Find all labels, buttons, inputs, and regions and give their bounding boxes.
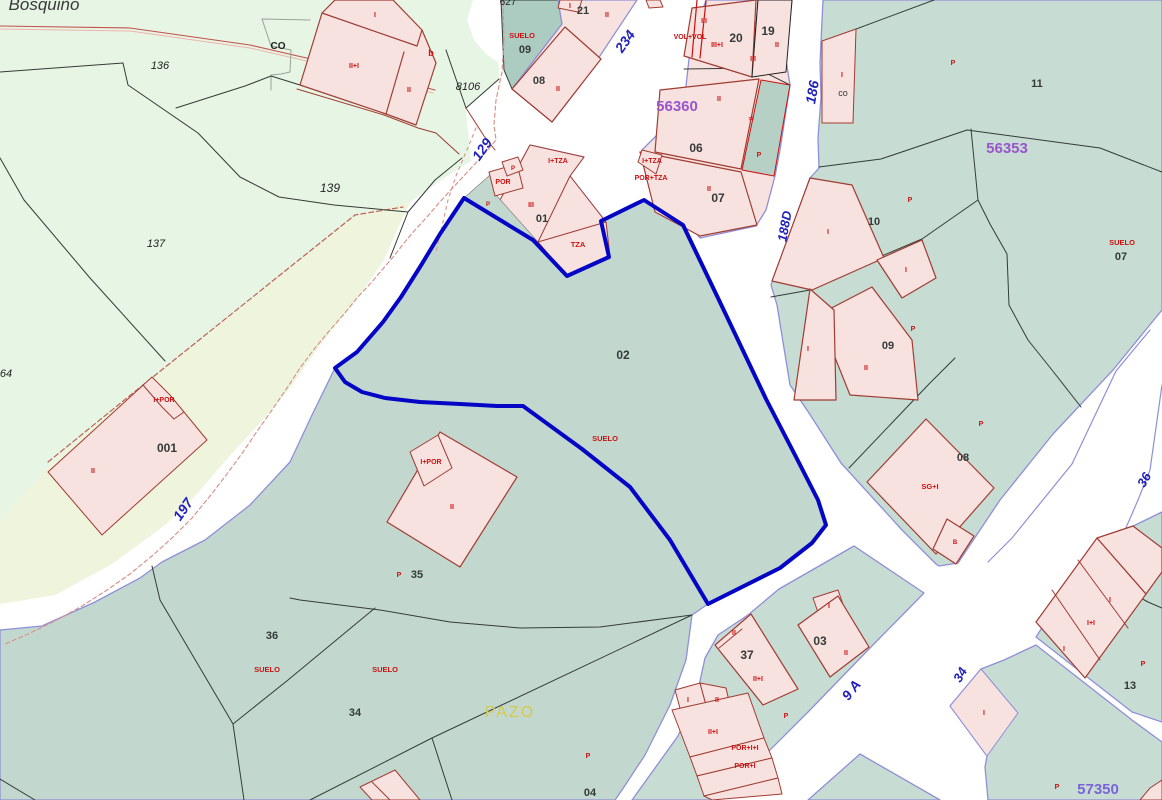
svg-text:627: 627 (500, 0, 517, 8)
svg-text:SUELO: SUELO (372, 665, 398, 674)
svg-text:01: 01 (536, 213, 548, 225)
svg-text:II: II (844, 650, 848, 657)
svg-text:II+I: II+I (708, 729, 718, 736)
svg-text:II: II (864, 365, 868, 372)
svg-text:P: P (486, 202, 490, 208)
svg-text:001: 001 (157, 441, 177, 455)
svg-text:I+POR: I+POR (420, 459, 441, 466)
svg-text:CO: CO (271, 41, 286, 52)
svg-text:B: B (953, 540, 958, 546)
svg-text:P: P (397, 572, 402, 579)
svg-text:II: II (732, 630, 736, 637)
svg-text:P: P (511, 166, 515, 172)
svg-text:I: I (1109, 597, 1111, 604)
svg-text:09: 09 (882, 340, 894, 352)
svg-text:I+TZA: I+TZA (548, 158, 568, 165)
svg-text:I+POR: I+POR (153, 397, 174, 404)
svg-text:SUELO: SUELO (1109, 238, 1135, 247)
svg-text:I+TZA: I+TZA (642, 158, 662, 165)
svg-text:II: II (556, 86, 560, 93)
svg-text:I: I (841, 72, 843, 79)
svg-text:57350: 57350 (1077, 781, 1119, 798)
svg-text:III: III (750, 56, 756, 63)
svg-text:21: 21 (577, 5, 589, 17)
svg-text:20: 20 (729, 31, 743, 45)
svg-text:I: I (905, 267, 907, 274)
svg-text:136: 136 (151, 60, 170, 72)
svg-text:I: I (374, 12, 376, 19)
svg-text:II+I: II+I (753, 676, 763, 683)
svg-text:36: 36 (266, 630, 278, 642)
svg-text:POR+I+I: POR+I+I (731, 745, 758, 752)
svg-text:I: I (1063, 646, 1065, 653)
svg-text:SUELO: SUELO (254, 665, 280, 674)
svg-text:37: 37 (740, 648, 754, 662)
svg-text:P: P (951, 60, 956, 67)
svg-text:POR: POR (495, 179, 510, 186)
svg-text:P: P (1055, 784, 1060, 791)
svg-text:III: III (528, 202, 534, 209)
svg-text:139: 139 (320, 181, 340, 195)
svg-text:II: II (717, 96, 721, 103)
svg-text:137: 137 (147, 238, 166, 250)
svg-text:P: P (757, 152, 762, 159)
svg-text:III+I: III+I (711, 42, 723, 49)
svg-text:13: 13 (1124, 680, 1136, 692)
svg-text:II: II (450, 504, 454, 511)
svg-text:TZA: TZA (571, 240, 586, 249)
svg-text:I: I (687, 697, 689, 704)
svg-text:19: 19 (761, 24, 775, 38)
svg-text:P: P (979, 421, 984, 428)
svg-text:II: II (605, 12, 609, 19)
svg-text:I+I: I+I (1087, 620, 1095, 627)
svg-text:Bosquiño: Bosquiño (9, 0, 80, 14)
svg-text:SUELO: SUELO (592, 434, 618, 443)
svg-text:34: 34 (349, 707, 362, 719)
svg-text:P: P (1141, 661, 1146, 668)
svg-text:II: II (715, 697, 719, 704)
svg-text:08: 08 (957, 452, 969, 464)
svg-text:II: II (775, 42, 779, 49)
svg-text:I: I (807, 346, 809, 353)
svg-text:I: I (828, 603, 830, 610)
svg-text:PAZO: PAZO (485, 704, 535, 721)
svg-text:04: 04 (584, 787, 597, 799)
svg-text:II: II (407, 87, 411, 94)
svg-text:POR+I: POR+I (734, 763, 755, 770)
svg-text:P: P (784, 713, 789, 720)
svg-text:b: b (428, 48, 434, 58)
svg-text:56353: 56353 (986, 140, 1028, 157)
svg-text:II: II (91, 468, 95, 475)
svg-text:11: 11 (1031, 78, 1043, 90)
svg-text:I: I (569, 3, 571, 10)
svg-text:I: I (983, 710, 985, 717)
svg-text:I: I (827, 229, 829, 236)
svg-text:P: P (908, 197, 913, 204)
svg-text:II+I: II+I (349, 63, 359, 70)
svg-text:07: 07 (1115, 251, 1127, 263)
svg-text:VOL+VOL: VOL+VOL (674, 34, 708, 41)
svg-text:II: II (707, 186, 711, 193)
svg-text:co: co (838, 88, 848, 98)
svg-text:10: 10 (868, 216, 880, 228)
svg-text:56360: 56360 (656, 98, 698, 115)
svg-text:SUELO: SUELO (509, 31, 535, 40)
svg-text:64: 64 (0, 368, 12, 380)
svg-text:SG+I: SG+I (921, 482, 938, 491)
svg-text:POR+TZA: POR+TZA (635, 175, 668, 182)
svg-text:III: III (701, 18, 707, 25)
svg-text:08: 08 (533, 75, 545, 87)
svg-text:02: 02 (616, 348, 630, 362)
svg-text:09: 09 (519, 44, 531, 56)
svg-text:35: 35 (411, 569, 423, 581)
svg-text:06: 06 (689, 141, 703, 155)
svg-text:8106: 8106 (456, 81, 481, 93)
svg-text:03: 03 (813, 634, 827, 648)
svg-text:P: P (911, 326, 916, 333)
svg-text:07: 07 (711, 191, 725, 205)
svg-text:P: P (586, 753, 591, 760)
